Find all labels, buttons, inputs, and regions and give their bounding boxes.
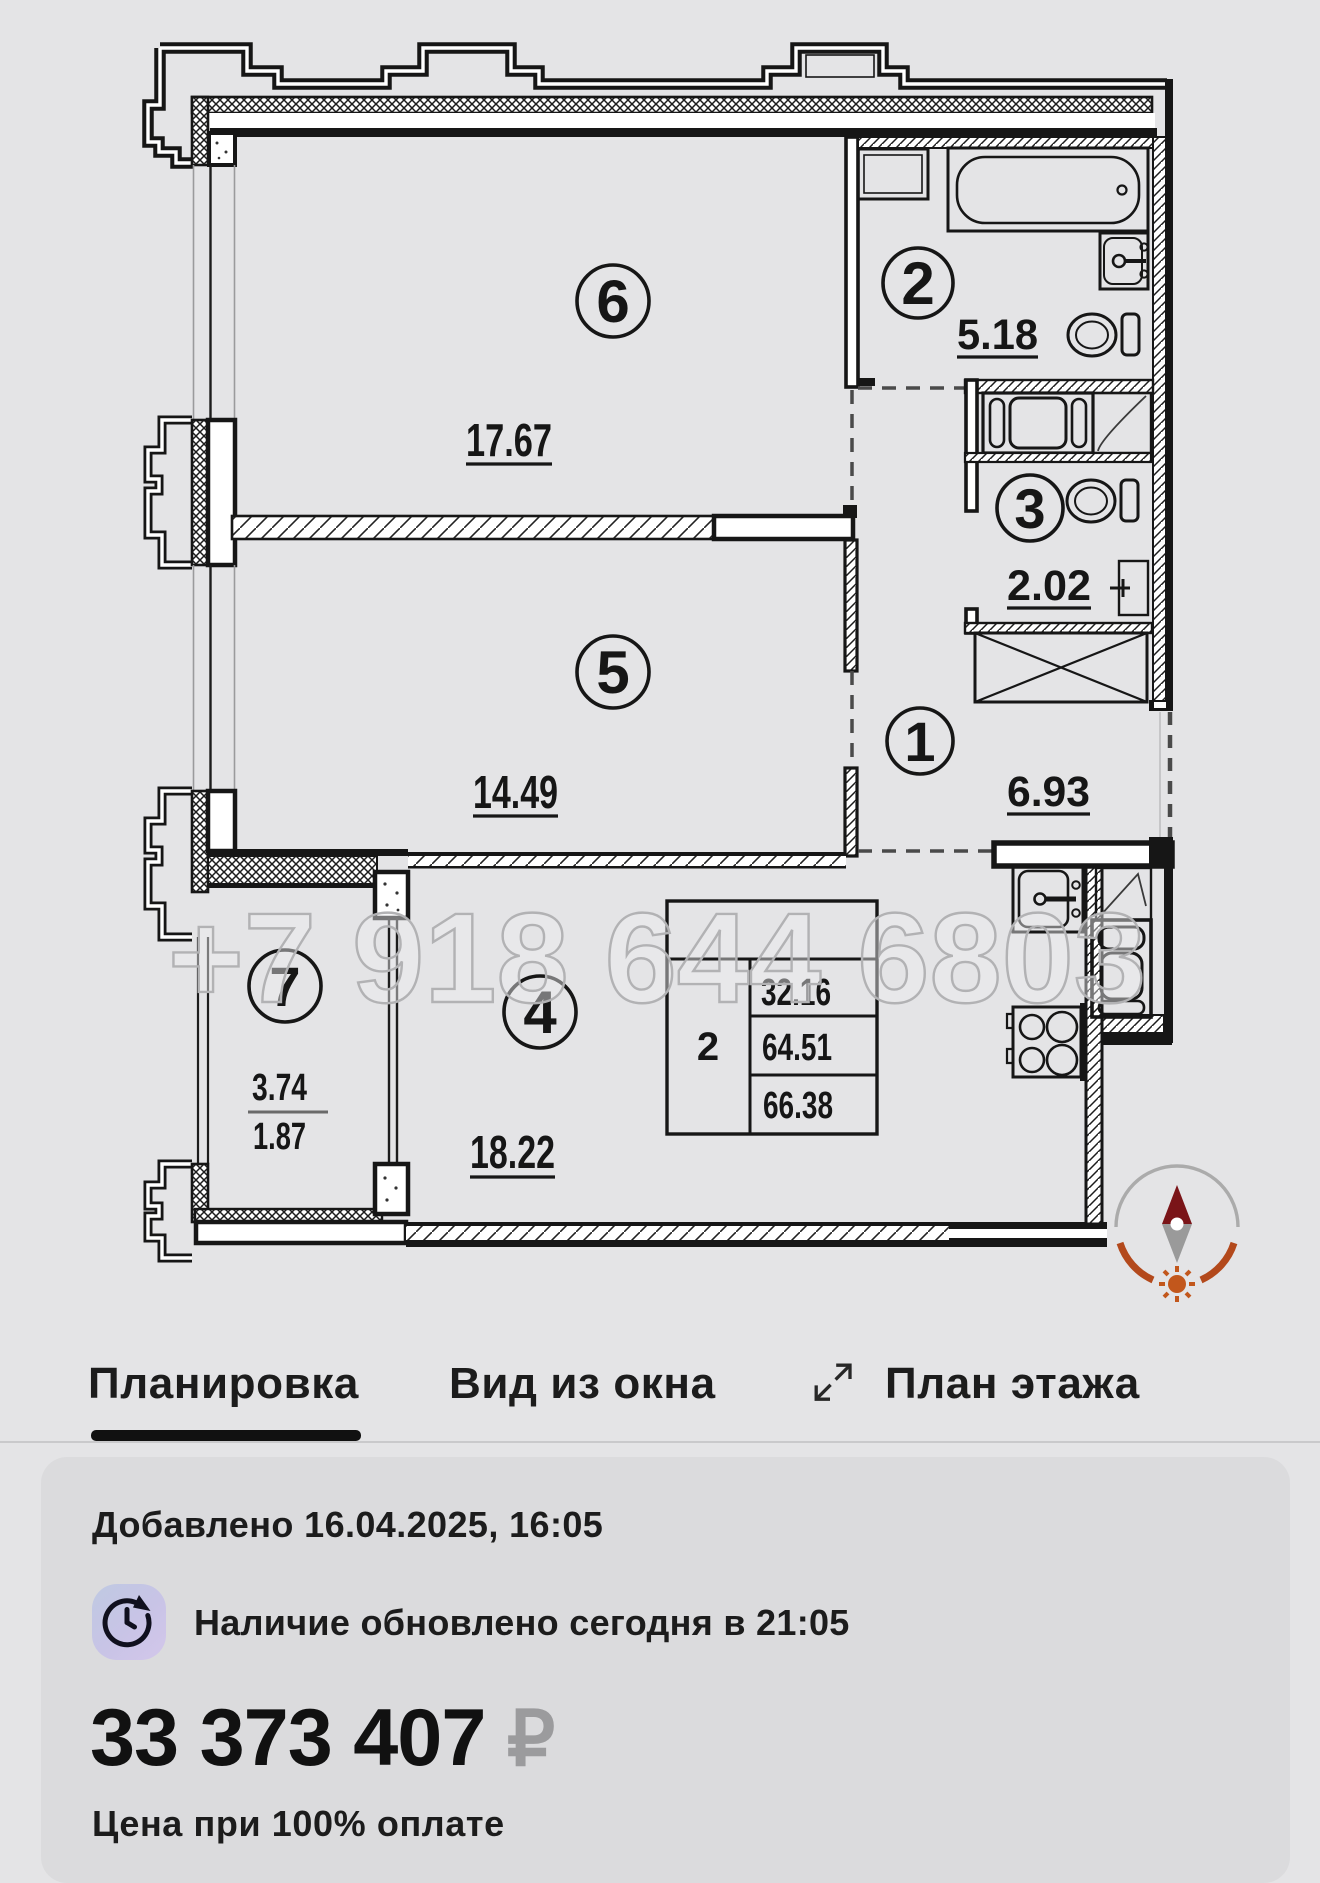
svg-text:6: 6 xyxy=(596,268,629,335)
svg-text:2: 2 xyxy=(901,250,934,317)
svg-text:1: 1 xyxy=(904,710,935,773)
svg-text:6.93: 6.93 xyxy=(1007,768,1090,816)
svg-text:3.74: 3.74 xyxy=(252,1067,307,1109)
svg-text:2: 2 xyxy=(697,1025,719,1069)
svg-text:5: 5 xyxy=(596,639,629,706)
svg-text:17.67: 17.67 xyxy=(466,414,552,466)
svg-text:18.22: 18.22 xyxy=(470,1126,555,1178)
svg-text:14.49: 14.49 xyxy=(473,766,558,818)
svg-text:64.51: 64.51 xyxy=(762,1027,832,1069)
svg-text:1.87: 1.87 xyxy=(253,1116,306,1158)
svg-text:3: 3 xyxy=(1014,477,1045,540)
svg-text:66.38: 66.38 xyxy=(763,1085,833,1127)
svg-text:+7 918 644 6803: +7 918 644 6803 xyxy=(168,887,1146,1030)
svg-text:2.02: 2.02 xyxy=(1007,562,1091,610)
svg-text:5.18: 5.18 xyxy=(957,311,1038,359)
